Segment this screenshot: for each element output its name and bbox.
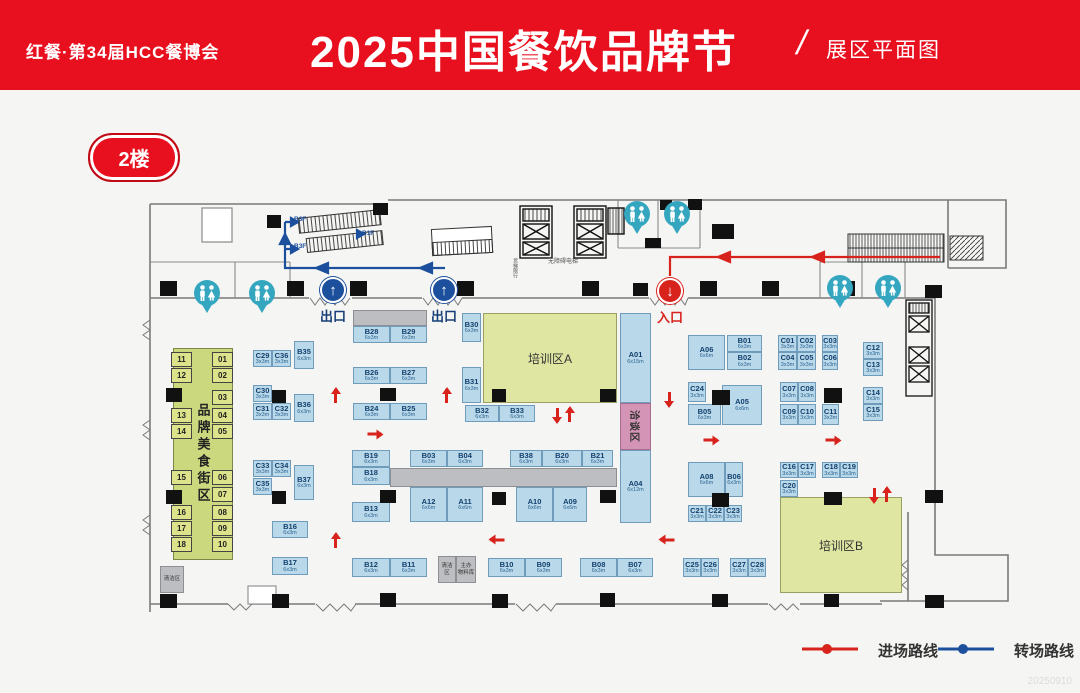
legend-transfer-route-label: 转场路线 <box>1014 640 1074 661</box>
booth-id-text: C02 <box>800 337 814 345</box>
booth-B33: B336x3m <box>499 405 535 422</box>
booth-C12: C123x3m <box>863 342 883 359</box>
booth-size-text: 6x3m <box>365 336 378 342</box>
booth-size-text: 6x3m <box>402 336 415 342</box>
booth-A06: A066x6m <box>688 335 725 370</box>
booth-id-text: C14 <box>866 389 880 397</box>
booth-C24: C243x3m <box>688 382 706 402</box>
zone-label: 培训区B <box>819 537 863 554</box>
booth-id-text: C35 <box>256 480 270 488</box>
exit-gate-icon: ↑出口 <box>404 277 484 325</box>
booth-id-text: A08 <box>700 473 714 481</box>
street-number-14: 14 <box>171 424 192 439</box>
booth-id-text: B09 <box>537 561 551 569</box>
exit-arrow-icon: ↑ <box>431 277 457 303</box>
booth-id-text: A09 <box>563 498 577 506</box>
zone-label: 品牌美食街区 <box>194 403 213 505</box>
booth-size-text: 3x3m <box>275 360 288 366</box>
booth-size-text: 3x3m <box>256 470 269 476</box>
street-number-17: 17 <box>171 521 192 536</box>
booth-size-text: 3x3m <box>782 472 795 478</box>
booth-B08: B086x3m <box>580 558 617 577</box>
booth-id-text: C21 <box>690 507 704 515</box>
restroom-icon <box>192 279 222 315</box>
restroom-icon-svg <box>247 279 277 315</box>
booth-C05: C053x3m <box>797 352 816 370</box>
pillar <box>925 285 942 298</box>
pillar <box>166 490 182 504</box>
booth-size-text: 6x3m <box>364 569 377 575</box>
booth-size-text: 3x3m <box>866 414 879 420</box>
booth-size-text: 6x3m <box>465 387 478 393</box>
booth-size-text: 6x6m <box>700 354 713 360</box>
booth-B05: B056x3m <box>688 404 721 425</box>
restroom-icon-svg <box>825 274 855 310</box>
booth-id-text: C25 <box>685 561 699 569</box>
booth-size-text: 3x3m <box>866 397 879 403</box>
plan-label: 货梯限行 <box>512 258 517 278</box>
booth-B26: B266x3m <box>353 367 390 384</box>
pillar <box>712 224 734 239</box>
booth-size-text: 6x3m <box>364 460 377 466</box>
booth-id-text: B29 <box>402 328 416 336</box>
street-number-09: 09 <box>212 521 233 536</box>
booth-id-text: C06 <box>823 354 837 362</box>
booth-B12: B126x3m <box>352 558 390 577</box>
booth-id-text: C16 <box>782 463 796 471</box>
booth-size-text: 6x15m <box>627 360 644 366</box>
entry-route-arrow-left <box>661 539 675 542</box>
booth-id-text: C27 <box>732 561 746 569</box>
booth-size-text: 3x3m <box>782 416 795 422</box>
booth-size-text: 3x3m <box>781 363 794 369</box>
booth-C21: C213x3m <box>688 505 706 522</box>
booth-size-text: 6x3m <box>628 569 641 575</box>
booth-B37: B376x3m <box>294 465 314 500</box>
booth-A01: A016x15m <box>620 313 651 403</box>
pillar <box>272 390 286 403</box>
booth-C14: C143x3m <box>863 387 883 404</box>
booth-size-text: 6x3m <box>537 569 550 575</box>
street-number-01: 01 <box>212 352 233 367</box>
booth-C08: C083x3m <box>798 382 816 402</box>
booth-size-text: 6x3m <box>738 345 751 351</box>
booth-B38: B386x3m <box>510 450 542 467</box>
booth-C18: C183x3m <box>822 462 840 478</box>
booth-B20: B206x3m <box>542 450 582 467</box>
booth-size-text: 6x3m <box>465 329 478 335</box>
booth-size-text: 6x3m <box>510 415 523 421</box>
booth-size-text: 3x3m <box>703 569 716 575</box>
booth-id-text: C34 <box>275 462 289 470</box>
booth-id-text: B17 <box>283 559 297 567</box>
entry-route-arrow-left <box>491 539 505 542</box>
booth-size-text: 6x6m <box>700 481 713 487</box>
booth-B24: B246x3m <box>353 403 390 420</box>
street-number-04: 04 <box>212 408 233 423</box>
booth-id-text: C30 <box>256 387 270 395</box>
booth-id-text: B27 <box>402 369 416 377</box>
booth-id-text: C22 <box>708 507 722 515</box>
booth-size-text: 6x3m <box>297 357 310 363</box>
restroom-icon-svg <box>192 279 222 315</box>
booth-size-text: 6x3m <box>283 531 296 537</box>
booth-id-text: B35 <box>297 348 311 356</box>
booth-C34: C343x3m <box>272 460 291 477</box>
booth-B18: B186x3m <box>352 467 390 485</box>
booth-C29: C293x3m <box>253 350 272 367</box>
booth-id-text: B36 <box>297 401 311 409</box>
booth-size-text: 6x3m <box>458 460 471 466</box>
pillar <box>925 595 944 608</box>
restroom-icon <box>662 200 692 236</box>
booth-id-text: C03 <box>823 337 837 345</box>
street-number-07: 07 <box>212 487 233 502</box>
booth-id-text: C09 <box>782 408 796 416</box>
booth-C09: C093x3m <box>780 404 798 425</box>
booth-B07: B076x3m <box>617 558 653 577</box>
pillar <box>600 490 616 503</box>
booth-id-text: B21 <box>591 452 605 460</box>
booth-B16: B166x3m <box>272 521 308 538</box>
booth-size-text: 6x3m <box>364 478 377 484</box>
booth-C27: C273x3m <box>730 558 748 577</box>
exit-label: 出口 <box>404 306 484 325</box>
booth-id-text: C05 <box>800 354 814 362</box>
booth-A11: A116x6m <box>447 487 483 522</box>
booth-B28: B286x3m <box>353 326 390 343</box>
booth-size-text: 6x3m <box>592 569 605 575</box>
booth-C13: C133x3m <box>863 359 883 376</box>
booth-id-text: A05 <box>735 398 749 406</box>
booth-B36: B366x3m <box>294 394 314 422</box>
booth-size-text: 3x3m <box>823 345 836 351</box>
booth-B01: B016x3m <box>727 335 762 352</box>
watermark-date: 20250910 <box>1028 676 1073 687</box>
entry-route-arrow-up <box>334 534 337 548</box>
pillar <box>272 491 286 504</box>
booth-id-text: C29 <box>256 352 270 360</box>
street-number-11: 11 <box>171 352 192 367</box>
booth-id-text: C17 <box>800 463 814 471</box>
booth-id-text: B01 <box>738 337 752 345</box>
booth-size-text: 6x3m <box>402 413 415 419</box>
pillar <box>380 593 396 607</box>
booth-B04: B046x3m <box>447 450 483 467</box>
booth-id-text: B25 <box>402 405 416 413</box>
booth-id-text: A01 <box>629 351 643 359</box>
booth-size-text: 6x3m <box>591 460 604 466</box>
pillar <box>712 390 730 405</box>
entry-route-arrow-right <box>704 439 718 442</box>
booth-id-text: C04 <box>781 354 795 362</box>
booth-id-text: B24 <box>365 405 379 413</box>
booth-A08: A086x6m <box>688 462 725 497</box>
entry-route-arrow-right <box>368 433 382 436</box>
booth-id-text: B28 <box>365 328 379 336</box>
booth-size-text: 3x3m <box>866 352 879 358</box>
booth-id-text: C32 <box>275 405 289 413</box>
pillar <box>824 388 842 403</box>
pillar <box>645 238 661 248</box>
booth-size-text: 6x3m <box>402 377 415 383</box>
restroom-icon <box>247 279 277 315</box>
booth-C03: C033x3m <box>822 335 838 352</box>
booth-A04: A046x12m <box>620 450 651 523</box>
booth-id-text: A12 <box>422 498 436 506</box>
booth-id-text: C12 <box>866 344 880 352</box>
booth-id-text: B06 <box>727 473 741 481</box>
booth-size-text: 6x6m <box>735 407 748 413</box>
street-number-13: 13 <box>171 408 192 423</box>
booth-C01: C013x3m <box>778 335 797 352</box>
booth-id-text: B08 <box>592 561 606 569</box>
booth-id-text: B10 <box>500 561 514 569</box>
restroom-icon-svg <box>622 200 652 236</box>
booth-id-text: A04 <box>629 480 643 488</box>
booth-C33: C333x3m <box>253 460 272 477</box>
booth-B29: B296x3m <box>390 326 427 343</box>
booth-size-text: 3x3m <box>256 413 269 419</box>
booth-id-text: C13 <box>866 361 880 369</box>
booth-size-text: 6x3m <box>283 568 296 574</box>
exit-arrow-icon: ↑ <box>320 277 346 303</box>
booth-B19: B196x3m <box>352 450 390 467</box>
pillar <box>712 594 728 607</box>
booth-B03: B036x3m <box>410 450 447 467</box>
booth-id-text: B12 <box>364 561 378 569</box>
booth-id-text: C31 <box>256 405 270 413</box>
booth-size-text: 6x3m <box>519 460 532 466</box>
booth-size-text: 3x3m <box>750 569 763 575</box>
pillar <box>272 594 289 608</box>
street-number-08: 08 <box>212 505 233 520</box>
booth-size-text: 3x3m <box>782 490 795 496</box>
booth-size-text: 6x3m <box>555 460 568 466</box>
pillar <box>160 594 177 608</box>
street-number-05: 05 <box>212 424 233 439</box>
street-number-03: 03 <box>212 390 233 405</box>
booth-B17: B176x3m <box>272 557 308 575</box>
booth-id-text: C08 <box>800 385 814 393</box>
booth-size-text: 3x3m <box>842 472 855 478</box>
zone-洽谈区: 洽谈区 <box>620 403 651 450</box>
gray-block: 清洁区 <box>438 556 456 583</box>
booth-C19: C193x3m <box>840 462 858 478</box>
booth-C16: C163x3m <box>780 462 798 478</box>
floorplan: 品牌美食街区培训区A培训区B洽谈区C293x3mC363x3mB356x3mC3… <box>0 0 1080 693</box>
booth-id-text: C23 <box>726 507 740 515</box>
booth-C35: C353x3m <box>253 478 272 495</box>
pillar <box>380 388 396 401</box>
pillar <box>160 281 177 296</box>
booth-C23: C233x3m <box>724 505 742 522</box>
pillar <box>600 389 616 402</box>
booth-id-text: C01 <box>781 337 795 345</box>
booth-id-text: B04 <box>458 452 472 460</box>
booth-C04: C043x3m <box>778 352 797 370</box>
booth-size-text: 3x3m <box>782 394 795 400</box>
booth-A12: A126x6m <box>410 487 447 522</box>
pillar <box>492 389 506 402</box>
booth-C36: C363x3m <box>272 350 291 367</box>
legend-transfer-route: 转场路线 <box>1002 640 1074 661</box>
booth-size-text: 6x3m <box>365 377 378 383</box>
booth-B35: B356x3m <box>294 341 314 369</box>
booth-size-text: 3x3m <box>275 470 288 476</box>
booth-size-text: 6x6m <box>458 506 471 512</box>
booth-size-text: 3x3m <box>690 515 703 521</box>
entry-route-arrow-down <box>556 408 559 422</box>
booth-size-text: 3x3m <box>800 345 813 351</box>
booth-C25: C253x3m <box>683 558 701 577</box>
booth-id-text: B11 <box>402 561 415 569</box>
booth-size-text: 3x3m <box>800 363 813 369</box>
booth-B32: B326x3m <box>465 405 499 422</box>
booth-size-text: 3x3m <box>800 416 813 422</box>
gray-block <box>390 468 617 487</box>
booth-C22: C223x3m <box>706 505 724 522</box>
booth-size-text: 3x3m <box>708 515 721 521</box>
booth-size-text: 3x3m <box>781 345 794 351</box>
booth-size-text: 6x6m <box>528 506 541 512</box>
zone-label: 洽谈区 <box>628 410 643 443</box>
booth-id-text: C11 <box>824 408 837 416</box>
street-number-06: 06 <box>212 470 233 485</box>
exit-label: 出口 <box>293 306 373 325</box>
booth-id-text: B16 <box>283 523 297 531</box>
booth-size-text: 3x3m <box>256 488 269 494</box>
street-number-18: 18 <box>171 537 192 552</box>
street-number-12: 12 <box>171 368 192 383</box>
booth-id-text: C07 <box>782 385 796 393</box>
enter-label: 入口 <box>630 307 710 326</box>
pillar <box>582 281 599 296</box>
plan-label: B3F <box>294 244 306 251</box>
booth-B06: B066x3m <box>725 462 743 497</box>
booth-C20: C203x3m <box>780 480 798 497</box>
booth-id-text: C28 <box>750 561 764 569</box>
booth-id-text: C33 <box>256 462 270 470</box>
zone-label: 培训区A <box>528 350 572 367</box>
booth-C02: C023x3m <box>797 335 816 352</box>
booth-size-text: 6x12m <box>627 488 644 494</box>
entry-route-arrow-up <box>885 488 888 502</box>
booth-B25: B256x3m <box>390 403 427 420</box>
booth-A10: A106x6m <box>516 487 553 522</box>
pillar <box>166 388 182 402</box>
booth-A09: A096x6m <box>553 487 587 522</box>
entry-route-arrow-up <box>334 389 337 403</box>
legend-entry-route-label: 进场路线 <box>878 640 938 661</box>
booth-id-text: A11 <box>458 498 471 506</box>
booth-size-text: 3x3m <box>256 395 269 401</box>
legend-entry-route: 进场路线 <box>866 640 938 661</box>
booth-id-text: B38 <box>519 452 533 460</box>
street-number-10: 10 <box>212 537 233 552</box>
booth-size-text: 6x3m <box>727 481 740 487</box>
booth-size-text: 6x3m <box>500 569 513 575</box>
street-number-15: 15 <box>171 470 192 485</box>
booth-size-text: 6x3m <box>364 514 377 520</box>
booth-B10: B106x3m <box>488 558 525 577</box>
booth-id-text: B18 <box>364 469 378 477</box>
plan-label: 无障碍电梯 <box>548 259 578 265</box>
enter-arrow-icon: ↓ <box>657 278 683 304</box>
booth-size-text: 3x3m <box>685 569 698 575</box>
page: 红餐·第34届HCC餐博会 2025中国餐饮品牌节 / 展区平面图 2楼 <box>0 0 1080 693</box>
booth-B31: B316x3m <box>462 367 481 403</box>
booth-size-text: 3x3m <box>800 394 813 400</box>
pillar <box>824 594 839 607</box>
booth-C15: C153x3m <box>863 404 883 421</box>
booth-size-text: 6x3m <box>738 363 751 369</box>
booth-B09: B096x3m <box>525 558 562 577</box>
entry-route-arrow-up <box>568 408 571 422</box>
booth-C07: C073x3m <box>780 382 798 402</box>
pillar <box>492 594 508 608</box>
booth-size-text: 6x3m <box>402 569 415 575</box>
pillar <box>762 281 779 296</box>
booth-size-text: 6x3m <box>475 415 488 421</box>
booth-id-text: C24 <box>690 385 704 393</box>
booth-size-text: 6x3m <box>698 416 711 422</box>
booth-size-text: 3x3m <box>824 416 837 422</box>
booth-size-text: 3x3m <box>275 413 288 419</box>
booth-id-text: B19 <box>364 452 378 460</box>
booth-id-text: B37 <box>297 476 311 484</box>
entry-route-arrow-up <box>445 389 448 403</box>
entry-route-arrow-down <box>873 488 876 502</box>
booth-id-text: C10 <box>800 408 814 416</box>
pillar <box>373 203 388 215</box>
booth-id-text: A10 <box>528 498 542 506</box>
street-number-16: 16 <box>171 505 192 520</box>
pillar <box>712 493 729 507</box>
street-number-02: 02 <box>212 368 233 383</box>
booth-id-text: B07 <box>628 561 642 569</box>
booth-id-text: B05 <box>698 408 712 416</box>
booth-B11: B116x3m <box>390 558 427 577</box>
booth-C10: C103x3m <box>798 404 816 425</box>
pillar <box>267 215 281 228</box>
booth-C31: C313x3m <box>253 403 272 420</box>
booth-C17: C173x3m <box>798 462 816 478</box>
booth-id-text: B02 <box>738 354 752 362</box>
booth-id-text: C36 <box>275 352 289 360</box>
booth-C28: C283x3m <box>748 558 766 577</box>
booth-id-text: C15 <box>866 406 880 414</box>
restroom-icon-svg <box>873 274 903 310</box>
booth-C26: C263x3m <box>701 558 719 577</box>
entry-route-arrow-right <box>826 439 840 442</box>
pillar <box>600 593 615 607</box>
booth-size-text: 3x3m <box>823 363 836 369</box>
booth-size-text: 3x3m <box>800 472 813 478</box>
booth-id-text: B33 <box>510 407 524 415</box>
booth-size-text: 6x3m <box>297 484 310 490</box>
booth-B02: B026x3m <box>727 352 762 370</box>
booth-B13: B136x3m <box>352 502 390 522</box>
booth-id-text: C19 <box>842 463 856 471</box>
booth-B27: B276x3m <box>390 367 427 384</box>
booth-id-text: B03 <box>422 452 436 460</box>
booth-id-text: B31 <box>465 378 479 386</box>
pillar <box>925 490 943 503</box>
booth-C32: C323x3m <box>272 403 291 420</box>
booth-C06: C063x3m <box>822 352 838 370</box>
gray-block: 清洁区 <box>160 566 184 593</box>
